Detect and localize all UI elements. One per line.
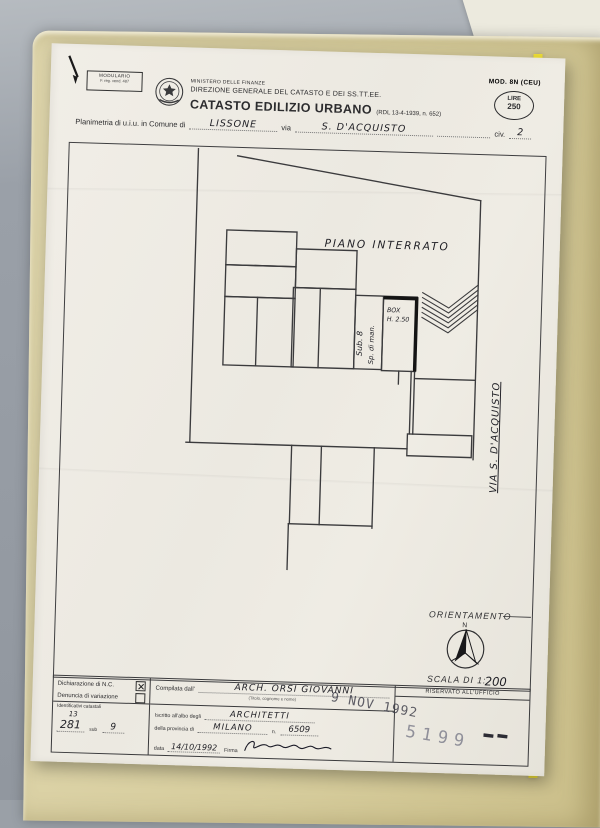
prov-value: MILANO xyxy=(198,722,268,735)
north-label: N xyxy=(462,622,467,629)
declaration-cell: Dichiarazione di N.C. Denuncia di variaz… xyxy=(53,676,150,705)
modulario-line2: F. reg. vend. 487 xyxy=(88,77,142,84)
date-value: 14/10/1992 xyxy=(168,742,220,754)
state-emblem-icon xyxy=(154,76,185,107)
pen-mark-icon xyxy=(64,54,87,91)
box-label-line2: H. 2.50 xyxy=(387,316,410,324)
modulario-stamp: MODULARIO F. reg. vend. 487 xyxy=(86,70,143,92)
prov-label: della provincia di xyxy=(154,726,194,733)
document-sheet: MODULARIO F. reg. vend. 487 MINISTERO DE… xyxy=(30,43,565,776)
plan-frame: PIANO INTERRATO BOX H. 2.50 Sub. 8 Sp. d… xyxy=(53,142,547,692)
albo-label: Iscritto all'albo degli xyxy=(155,713,201,720)
date-label: data xyxy=(154,746,164,752)
num-label: n. xyxy=(272,729,277,735)
num-value: 6509 xyxy=(280,724,318,736)
via-label: via xyxy=(281,123,291,132)
footer-middle-column: Compilata dall' ARCH. ORSI GIOVANNI (Tit… xyxy=(149,679,396,762)
declaration-var-label: Denuncia di variazione xyxy=(57,693,118,701)
document-title: CATASTO EDILIZIO URBANO xyxy=(190,97,372,116)
adjacent-name-label: Sp. di man. xyxy=(367,325,376,365)
identifiers-value: 281 xyxy=(56,718,84,733)
orientation-label: ORIENTAMENTO xyxy=(429,609,512,622)
declaration-nc-label: Dichiarazione di N.C. xyxy=(58,681,115,689)
signature xyxy=(242,736,334,757)
compiled-label: Compilata dall' xyxy=(155,686,194,693)
identifiers-cell: Identificativi catastali 13 281 sub 9 xyxy=(52,702,149,755)
civ-value: 2 xyxy=(509,127,531,140)
register-cell: Iscritto all'albo degli ARCHITETTI della… xyxy=(149,704,394,761)
mod-label: MOD. 8N (CEU) xyxy=(489,78,541,87)
albo-value: ARCHITETTI xyxy=(205,709,315,723)
street-label: VIA S. D'ACQUISTO xyxy=(488,382,502,494)
box-label-line1: BOX xyxy=(387,307,401,315)
comune-value: LISSONE xyxy=(189,117,277,132)
footer-left-column: Dichiarazione di N.C. Denuncia di variaz… xyxy=(52,676,151,755)
scale-label: SCALA DI 1: xyxy=(427,674,487,686)
identifiers-sub-value: 9 xyxy=(102,722,124,734)
header-block: MINISTERO DELLE FINANZE DIREZIONE GENERA… xyxy=(190,78,471,121)
document-title-ref: (RDL 13-4-1939, n. 652) xyxy=(376,109,441,117)
photo-background: MODULARIO F. reg. vend. 487 MINISTERO DE… xyxy=(0,0,600,800)
adjacent-room-label: Sub. 8 Sp. di man. xyxy=(355,324,377,364)
identifiers-sub-label: sub xyxy=(89,728,97,733)
adjacent-sub-label: Sub. 8 xyxy=(355,331,365,356)
floor-plan-drawing: PIANO INTERRATO BOX H. 2.50 Sub. 8 Sp. d… xyxy=(54,143,546,691)
via-value: S. D'ACQUISTO xyxy=(295,121,433,137)
checked-mark-icon xyxy=(137,683,144,690)
planimetria-label: Planimetria di u.i.u. in Comune di xyxy=(75,117,185,129)
lire-stamp: LIRE 250 xyxy=(494,90,535,120)
checkbox-declaration-nc xyxy=(136,681,146,691)
firma-label: Firma xyxy=(224,748,238,754)
checkbox-declaration-var xyxy=(135,693,145,703)
ramp-hatching-icon xyxy=(421,283,478,333)
lire-value: 250 xyxy=(495,101,533,111)
compass-icon xyxy=(447,629,485,669)
civ-label: civ. xyxy=(494,129,505,138)
footer-table: Dichiarazione di N.C. Denuncia di variaz… xyxy=(51,675,531,767)
dotted-filler xyxy=(437,136,491,139)
plan-walls xyxy=(182,149,482,575)
